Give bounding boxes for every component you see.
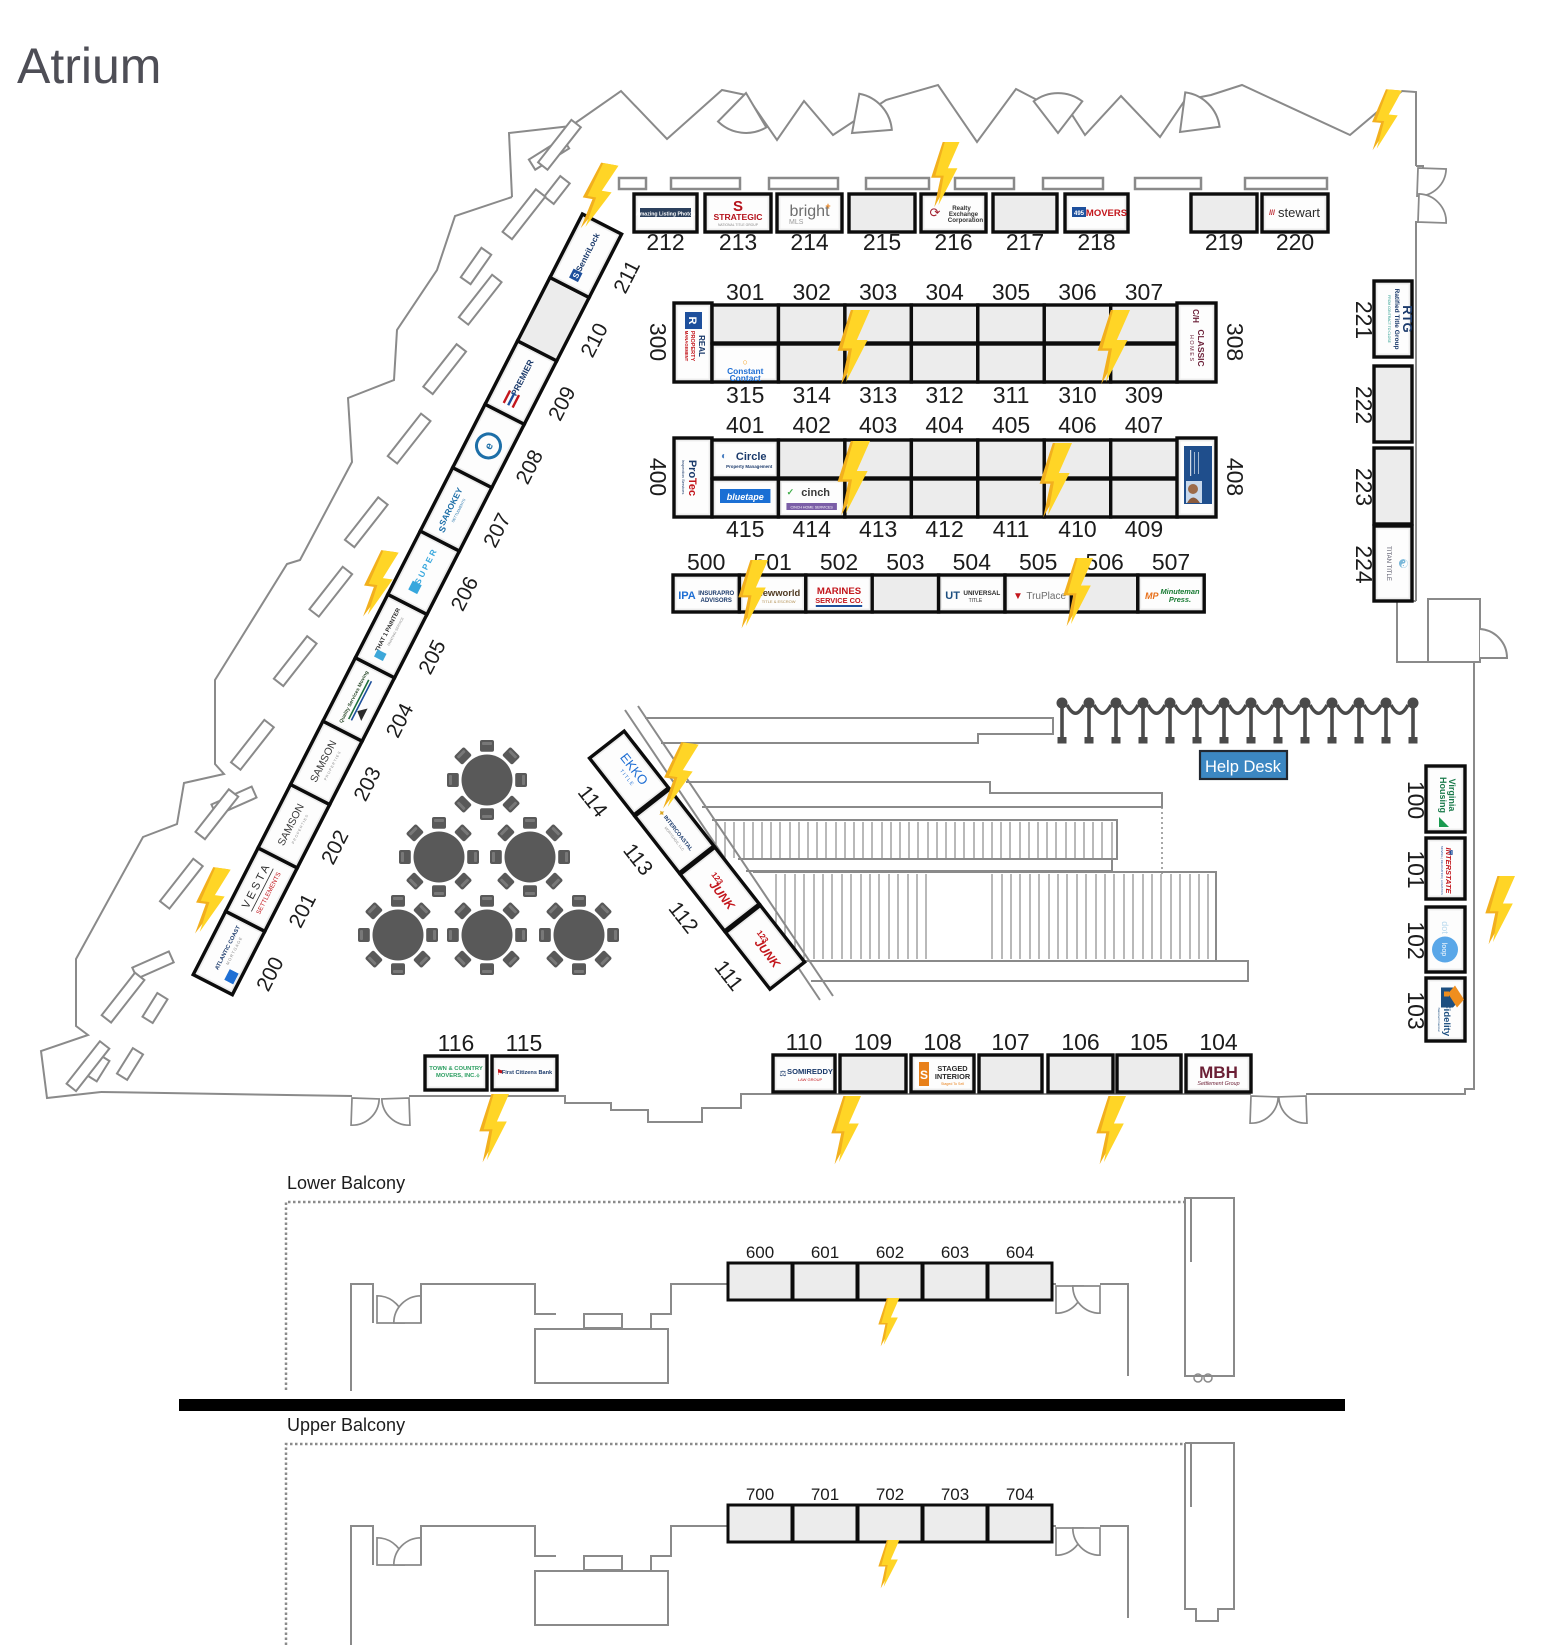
svg-text:411: 411 bbox=[993, 516, 1030, 542]
svg-text:311: 311 bbox=[993, 382, 1030, 408]
svg-text:220: 220 bbox=[1276, 229, 1314, 255]
svg-text:218: 218 bbox=[1077, 229, 1115, 255]
svg-text:702: 702 bbox=[876, 1485, 904, 1504]
svg-text:Amazing Listing Photos: Amazing Listing Photos bbox=[636, 212, 695, 218]
svg-text:700: 700 bbox=[746, 1485, 774, 1504]
svg-text:604: 604 bbox=[1006, 1243, 1034, 1262]
svg-text:MOVERS: MOVERS bbox=[1086, 208, 1127, 219]
svg-text:UNIVERSAL: UNIVERSAL bbox=[963, 590, 1000, 597]
svg-text:Inspection Services: Inspection Services bbox=[681, 460, 686, 495]
svg-text:600: 600 bbox=[746, 1243, 774, 1262]
svg-text:Housing: Housing bbox=[1438, 777, 1448, 813]
svg-text:413: 413 bbox=[859, 516, 897, 542]
svg-text:S: S bbox=[920, 1068, 928, 1082]
svg-text:◐: ◐ bbox=[721, 451, 727, 462]
svg-text:INSURAPRO: INSURAPRO bbox=[698, 591, 734, 597]
svg-text:SERVICE CO.: SERVICE CO. bbox=[815, 596, 863, 605]
svg-text:H O M E S: H O M E S bbox=[1188, 335, 1194, 362]
svg-text:MOVERS, INC.: MOVERS, INC. bbox=[436, 1073, 476, 1079]
svg-text:412: 412 bbox=[925, 516, 963, 542]
svg-text:701: 701 bbox=[811, 1485, 839, 1504]
svg-text:213: 213 bbox=[719, 229, 757, 255]
svg-text:First Citizens Bank: First Citizens Bank bbox=[502, 1070, 553, 1076]
svg-text:116: 116 bbox=[438, 1030, 475, 1056]
svg-text:R: R bbox=[686, 317, 698, 325]
svg-text:106: 106 bbox=[1061, 1029, 1099, 1055]
svg-text:314: 314 bbox=[792, 382, 831, 408]
svg-text:224: 224 bbox=[1351, 545, 1377, 584]
svg-text:313: 313 bbox=[859, 382, 897, 408]
svg-text:502: 502 bbox=[820, 549, 858, 575]
svg-text:☯: ☯ bbox=[1396, 558, 1410, 569]
svg-text:105: 105 bbox=[1130, 1029, 1168, 1055]
svg-text:504: 504 bbox=[953, 549, 992, 575]
svg-text:✓: ✓ bbox=[787, 487, 795, 497]
svg-text:301: 301 bbox=[726, 279, 764, 305]
svg-text:703: 703 bbox=[941, 1485, 969, 1504]
svg-text:104: 104 bbox=[1199, 1029, 1238, 1055]
svg-text:⟳: ⟳ bbox=[930, 205, 941, 220]
svg-text:100: 100 bbox=[1403, 781, 1429, 819]
svg-text:Lower Balcony: Lower Balcony bbox=[287, 1173, 405, 1193]
svg-text:495: 495 bbox=[1074, 211, 1085, 217]
svg-text:◚: ◚ bbox=[1446, 850, 1453, 856]
svg-text:LAW GROUP: LAW GROUP bbox=[798, 1077, 823, 1082]
svg-text:407: 407 bbox=[1125, 412, 1163, 438]
svg-text:UT: UT bbox=[945, 590, 960, 602]
svg-text:305: 305 bbox=[992, 279, 1030, 305]
svg-text:307: 307 bbox=[1125, 279, 1163, 305]
svg-text:MP: MP bbox=[1145, 591, 1159, 601]
svg-text:▼: ▼ bbox=[1013, 591, 1023, 602]
svg-text:stewart: stewart bbox=[1278, 205, 1320, 220]
svg-text:500: 500 bbox=[687, 549, 725, 575]
svg-text:loop: loop bbox=[1440, 943, 1447, 956]
svg-text:302: 302 bbox=[792, 279, 830, 305]
svg-text:TITAN TITLE: TITAN TITLE bbox=[1385, 546, 1391, 581]
svg-text:115: 115 bbox=[506, 1030, 543, 1056]
svg-text:505: 505 bbox=[1019, 549, 1057, 575]
svg-text:dot: dot bbox=[1440, 921, 1450, 934]
svg-text:TruPlace: TruPlace bbox=[1026, 591, 1066, 602]
svg-text:CLASSIC: CLASSIC bbox=[1196, 329, 1206, 366]
svg-text:309: 309 bbox=[1125, 382, 1163, 408]
svg-text:107: 107 bbox=[991, 1029, 1029, 1055]
svg-text:410: 410 bbox=[1058, 516, 1096, 542]
svg-text:RTG: RTG bbox=[1400, 305, 1415, 332]
svg-text:Help Desk: Help Desk bbox=[1205, 758, 1282, 776]
svg-text:Fidelity: Fidelity bbox=[1441, 1003, 1452, 1037]
svg-text:bluetape: bluetape bbox=[727, 492, 764, 502]
svg-text:216: 216 bbox=[934, 229, 972, 255]
svg-text:⚘: ⚘ bbox=[475, 1073, 480, 1080]
svg-text:bright: bright bbox=[789, 203, 830, 220]
svg-text:Property Management: Property Management bbox=[726, 464, 773, 469]
svg-text:Ratified Title Group: Ratified Title Group bbox=[1393, 288, 1400, 349]
svg-text:+: + bbox=[825, 201, 830, 211]
svg-text:503: 503 bbox=[886, 549, 924, 575]
svg-text:219: 219 bbox=[1205, 229, 1243, 255]
svg-text:Corporation: Corporation bbox=[948, 217, 984, 224]
svg-text:704: 704 bbox=[1006, 1485, 1034, 1504]
svg-text:303: 303 bbox=[859, 279, 897, 305]
svg-text:SOMIREDDY: SOMIREDDY bbox=[787, 1067, 833, 1076]
svg-text:404: 404 bbox=[925, 412, 964, 438]
svg-text:National Financial: National Financial bbox=[1437, 1008, 1441, 1032]
svg-text:TITLE: TITLE bbox=[969, 598, 983, 604]
svg-text:222: 222 bbox=[1351, 386, 1377, 424]
svg-text:601: 601 bbox=[811, 1243, 839, 1262]
svg-text:TOWN & COUNTRY: TOWN & COUNTRY bbox=[429, 1066, 483, 1072]
svg-text:Press.: Press. bbox=[1169, 595, 1191, 604]
svg-text:Atrium: Atrium bbox=[17, 38, 161, 94]
svg-text:308: 308 bbox=[1222, 323, 1248, 361]
svg-text:102: 102 bbox=[1403, 921, 1429, 959]
svg-text:414: 414 bbox=[792, 516, 831, 542]
svg-text:Tec: Tec bbox=[686, 478, 698, 496]
svg-text:306: 306 bbox=[1058, 279, 1096, 305]
svg-text:415: 415 bbox=[726, 516, 764, 542]
svg-text:109: 109 bbox=[854, 1029, 892, 1055]
svg-text:Upper Balcony: Upper Balcony bbox=[287, 1415, 405, 1435]
svg-text:406: 406 bbox=[1058, 412, 1096, 438]
svg-text:110: 110 bbox=[786, 1029, 823, 1055]
svg-text:223: 223 bbox=[1351, 468, 1377, 506]
svg-text:214: 214 bbox=[790, 229, 829, 255]
svg-text:405: 405 bbox=[992, 412, 1030, 438]
svg-text:221: 221 bbox=[1351, 301, 1377, 339]
svg-text:⚖: ⚖ bbox=[779, 1069, 786, 1078]
svg-text:103: 103 bbox=[1403, 991, 1429, 1029]
svg-text:Circle: Circle bbox=[736, 451, 767, 463]
svg-text:cinch: cinch bbox=[801, 487, 830, 499]
svg-text:312: 312 bbox=[925, 382, 963, 408]
svg-text:MLS: MLS bbox=[789, 219, 804, 226]
svg-text:402: 402 bbox=[792, 412, 830, 438]
svg-text:FROM CONTRACT TO CLOSE: FROM CONTRACT TO CLOSE bbox=[1387, 295, 1391, 343]
svg-text:304: 304 bbox=[925, 279, 964, 305]
svg-text:212: 212 bbox=[646, 229, 684, 255]
svg-text:TITLE & ESCROW: TITLE & ESCROW bbox=[762, 599, 796, 604]
svg-text:310: 310 bbox=[1058, 382, 1096, 408]
svg-text:315: 315 bbox=[726, 382, 764, 408]
svg-text:INTERIOR: INTERIOR bbox=[935, 1072, 971, 1081]
svg-text:401: 401 bbox=[726, 412, 764, 438]
svg-text:300: 300 bbox=[645, 323, 671, 361]
svg-text:403: 403 bbox=[859, 412, 897, 438]
svg-text:STRATEGIC: STRATEGIC bbox=[713, 212, 762, 222]
svg-text:IPA: IPA bbox=[678, 590, 696, 602]
svg-text:602: 602 bbox=[876, 1243, 904, 1262]
svg-text:MOVING | RELOCATION | LOGISTIC: MOVING | RELOCATION | LOGISTICS bbox=[1440, 846, 1444, 895]
svg-text:ADVISORS: ADVISORS bbox=[701, 598, 732, 604]
svg-text:Staged To Sell: Staged To Sell bbox=[941, 1082, 964, 1086]
svg-text:MBH: MBH bbox=[1199, 1063, 1238, 1082]
svg-text:REAL: REAL bbox=[697, 335, 706, 357]
svg-text:MANAGEMENT: MANAGEMENT bbox=[684, 331, 689, 362]
svg-text:408: 408 bbox=[1222, 458, 1248, 496]
svg-text:101: 101 bbox=[1403, 850, 1429, 888]
svg-text:CINCH HOME SERVICES: CINCH HOME SERVICES bbox=[791, 506, 834, 510]
svg-text:108: 108 bbox=[923, 1029, 961, 1055]
svg-text:409: 409 bbox=[1125, 516, 1163, 542]
svg-text:507: 507 bbox=[1152, 549, 1190, 575]
svg-text:///: /// bbox=[1269, 210, 1275, 217]
svg-text:603: 603 bbox=[941, 1243, 969, 1262]
svg-text:215: 215 bbox=[863, 229, 901, 255]
svg-text:Pro: Pro bbox=[686, 460, 698, 479]
svg-text:NATIONAL TITLE GROUP: NATIONAL TITLE GROUP bbox=[718, 223, 759, 227]
svg-text:Settlement Group: Settlement Group bbox=[1197, 1081, 1239, 1087]
svg-text:217: 217 bbox=[1006, 229, 1044, 255]
svg-text:C/H: C/H bbox=[1191, 309, 1200, 323]
svg-text:400: 400 bbox=[645, 458, 671, 496]
